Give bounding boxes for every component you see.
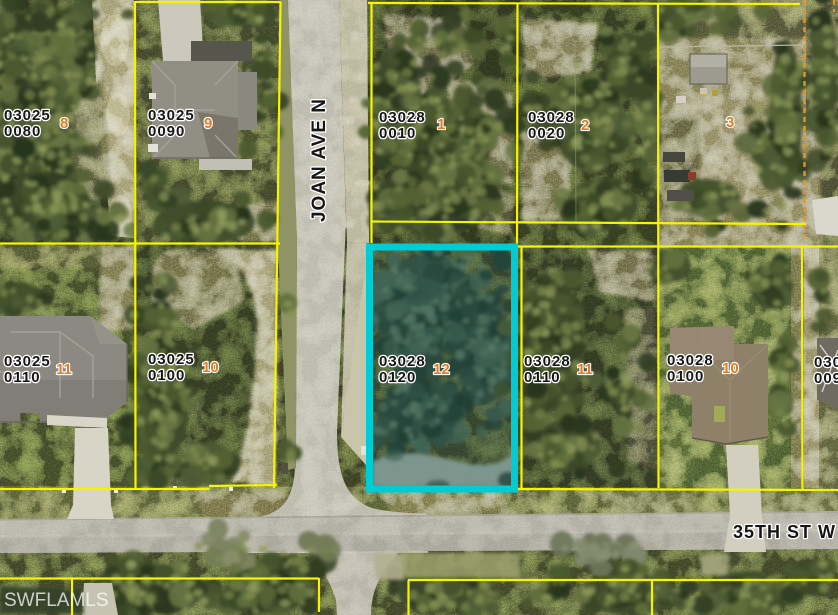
svg-text:0020: 0020 xyxy=(528,125,565,142)
svg-text:03025: 03025 xyxy=(148,351,195,368)
svg-text:0100: 0100 xyxy=(667,368,704,385)
svg-text:03025: 03025 xyxy=(4,353,51,370)
svg-text:0090: 0090 xyxy=(148,123,185,140)
svg-text:1: 1 xyxy=(437,116,445,133)
svg-text:03028: 03028 xyxy=(814,354,838,371)
svg-text:0090: 0090 xyxy=(814,370,838,387)
svg-text:11: 11 xyxy=(577,361,593,378)
svg-text:JOAN AVE N: JOAN AVE N xyxy=(309,98,330,222)
svg-text:12: 12 xyxy=(433,361,450,378)
svg-text:03028: 03028 xyxy=(528,109,575,126)
svg-text:3: 3 xyxy=(726,114,734,131)
svg-text:2: 2 xyxy=(581,117,589,134)
svg-text:03028: 03028 xyxy=(379,353,426,370)
svg-text:0010: 0010 xyxy=(379,125,416,142)
svg-text:9: 9 xyxy=(204,115,212,132)
svg-text:11: 11 xyxy=(56,361,72,378)
svg-text:03028: 03028 xyxy=(379,109,426,126)
svg-text:0100: 0100 xyxy=(148,367,185,384)
svg-text:10: 10 xyxy=(722,360,739,377)
svg-text:8: 8 xyxy=(60,115,68,132)
svg-text:0110: 0110 xyxy=(524,369,561,386)
svg-text:03025: 03025 xyxy=(148,107,195,124)
svg-text:35TH ST W: 35TH ST W xyxy=(733,522,836,542)
svg-text:03025: 03025 xyxy=(4,107,51,124)
svg-text:0080: 0080 xyxy=(4,123,41,140)
svg-text:03028: 03028 xyxy=(667,352,714,369)
svg-text:03028: 03028 xyxy=(524,353,571,370)
svg-text:0110: 0110 xyxy=(4,369,41,386)
svg-text:SWFLAMLS: SWFLAMLS xyxy=(4,590,109,611)
svg-text:10: 10 xyxy=(202,359,219,376)
svg-text:0120: 0120 xyxy=(379,369,416,386)
